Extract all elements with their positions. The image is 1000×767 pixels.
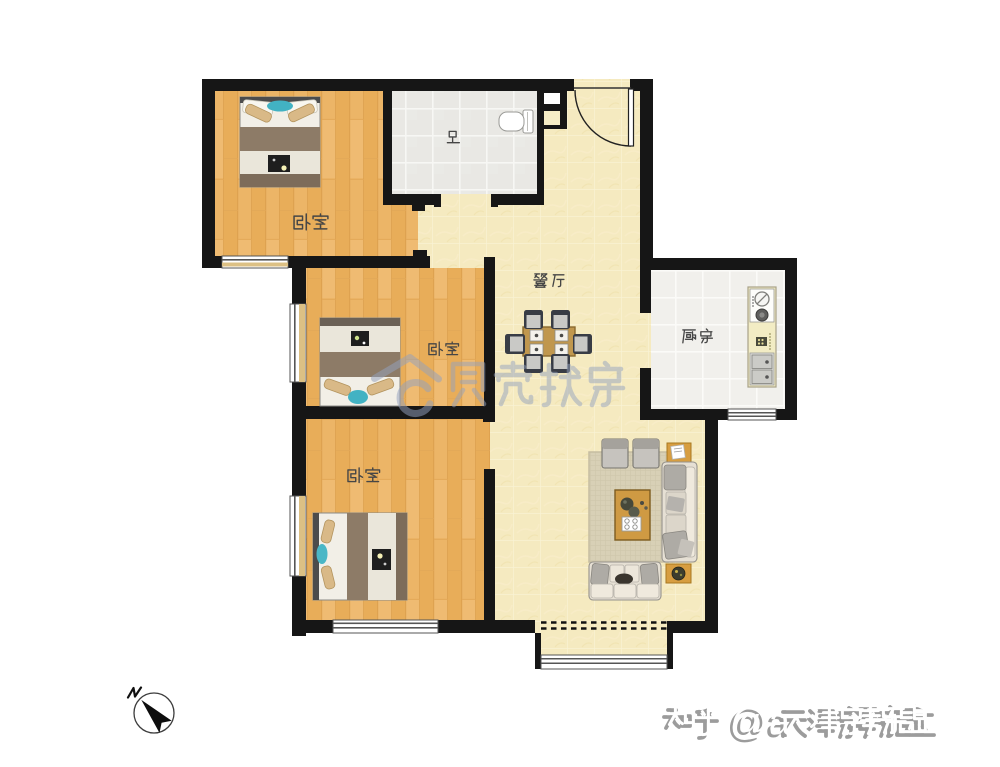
svg-text:@a: @a — [730, 701, 791, 743]
